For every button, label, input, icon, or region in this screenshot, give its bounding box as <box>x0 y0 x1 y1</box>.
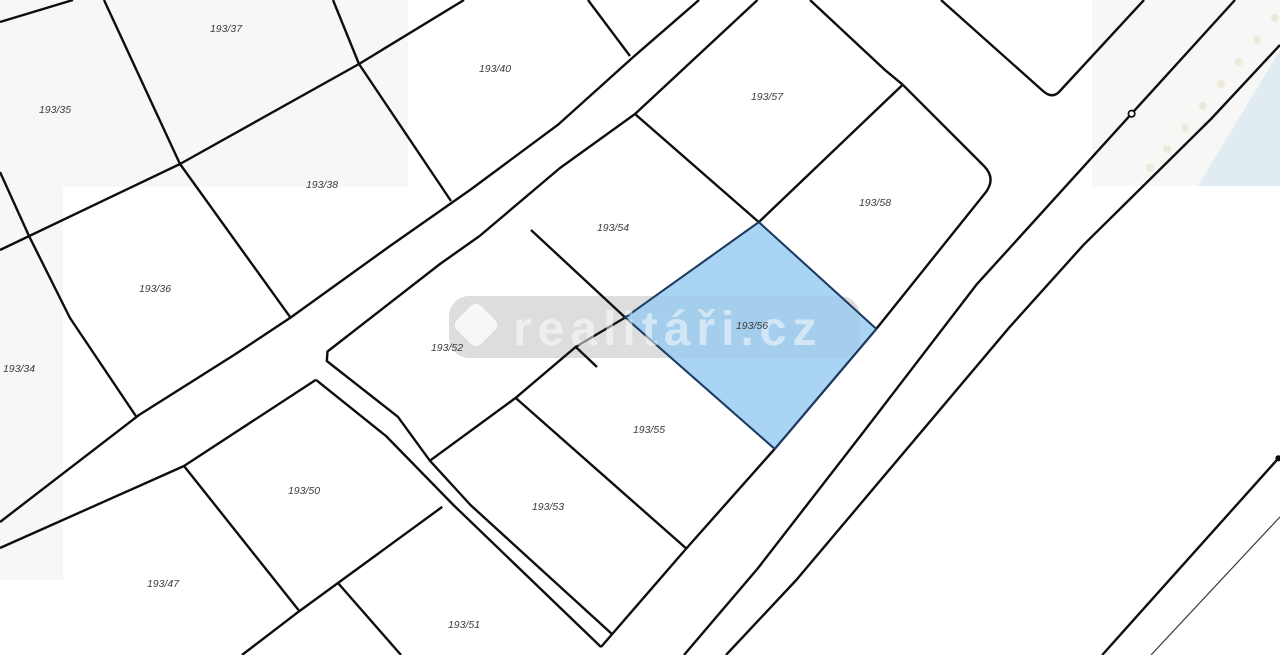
svg-text:193/35: 193/35 <box>39 104 71 116</box>
svg-text:193/53: 193/53 <box>532 501 564 513</box>
svg-text:193/52: 193/52 <box>431 342 463 354</box>
svg-text:193/51: 193/51 <box>448 619 480 631</box>
svg-text:193/55: 193/55 <box>633 424 665 436</box>
svg-text:193/36: 193/36 <box>139 283 171 295</box>
svg-text:193/57: 193/57 <box>751 91 784 103</box>
svg-text:193/50: 193/50 <box>288 485 320 497</box>
svg-text:193/47: 193/47 <box>147 578 180 590</box>
svg-text:realitáři.cz: realitáři.cz <box>513 303 822 356</box>
svg-text:193/58: 193/58 <box>859 197 891 209</box>
svg-text:193/54: 193/54 <box>597 222 629 234</box>
svg-text:193/40: 193/40 <box>479 63 511 75</box>
svg-text:193/34: 193/34 <box>3 363 35 375</box>
svg-text:193/38: 193/38 <box>306 179 338 191</box>
svg-text:193/37: 193/37 <box>210 23 243 35</box>
svg-text:193/56: 193/56 <box>736 320 768 332</box>
